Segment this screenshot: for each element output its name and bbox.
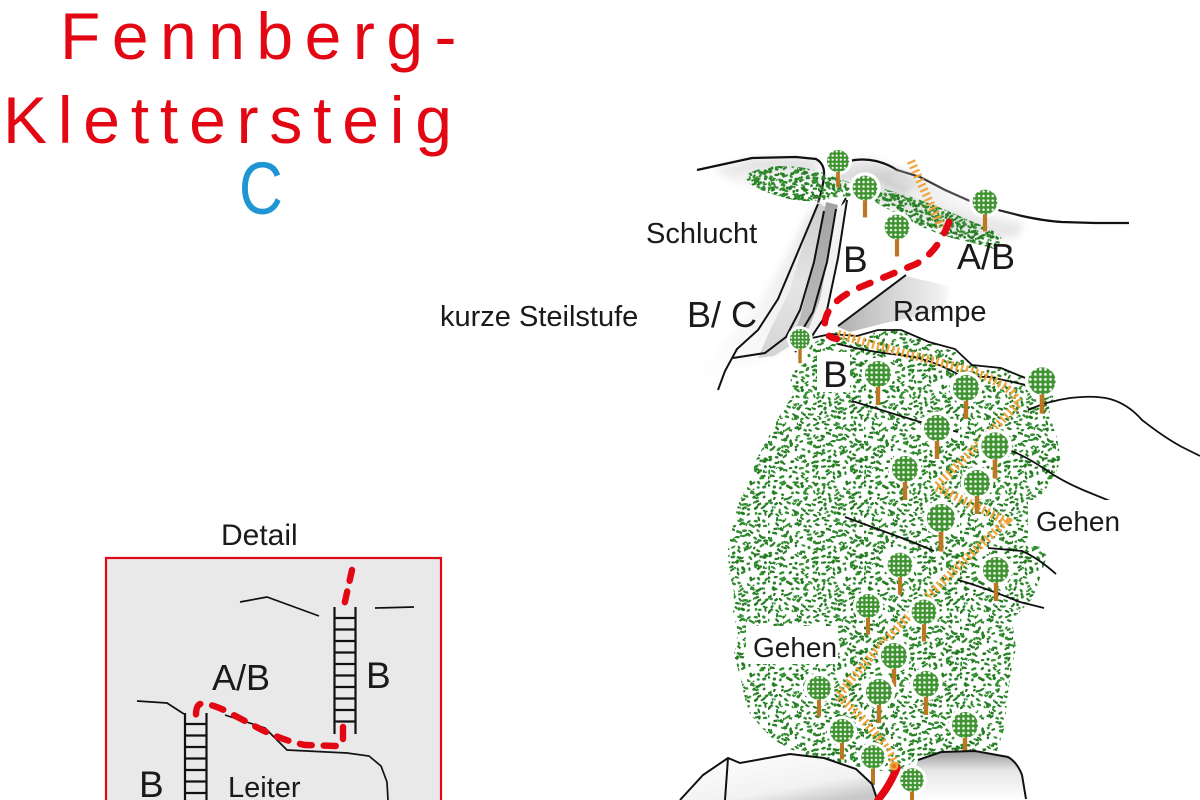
svg-text:C: C	[239, 148, 283, 230]
svg-text:Rampe: Rampe	[893, 296, 987, 328]
svg-text:B: B	[823, 354, 848, 395]
svg-text:Detail: Detail	[221, 519, 298, 552]
svg-text:kurze Steilstufe: kurze Steilstufe	[440, 301, 638, 333]
svg-text:Klettersteig: Klettersteig	[3, 83, 463, 157]
svg-text:B: B	[366, 655, 391, 696]
svg-text:B: B	[843, 239, 868, 280]
svg-text:Schlucht: Schlucht	[646, 218, 757, 250]
svg-text:A/B: A/B	[212, 657, 270, 698]
svg-text:Leiter: Leiter	[228, 772, 301, 800]
svg-text:B: B	[139, 764, 164, 800]
svg-text:Gehen: Gehen	[1036, 506, 1120, 537]
svg-text:A/B: A/B	[957, 236, 1015, 277]
svg-text:Fennberg-: Fennberg-	[60, 0, 468, 73]
svg-text:Gehen: Gehen	[753, 632, 837, 663]
svg-text:B/ C: B/ C	[687, 294, 757, 335]
